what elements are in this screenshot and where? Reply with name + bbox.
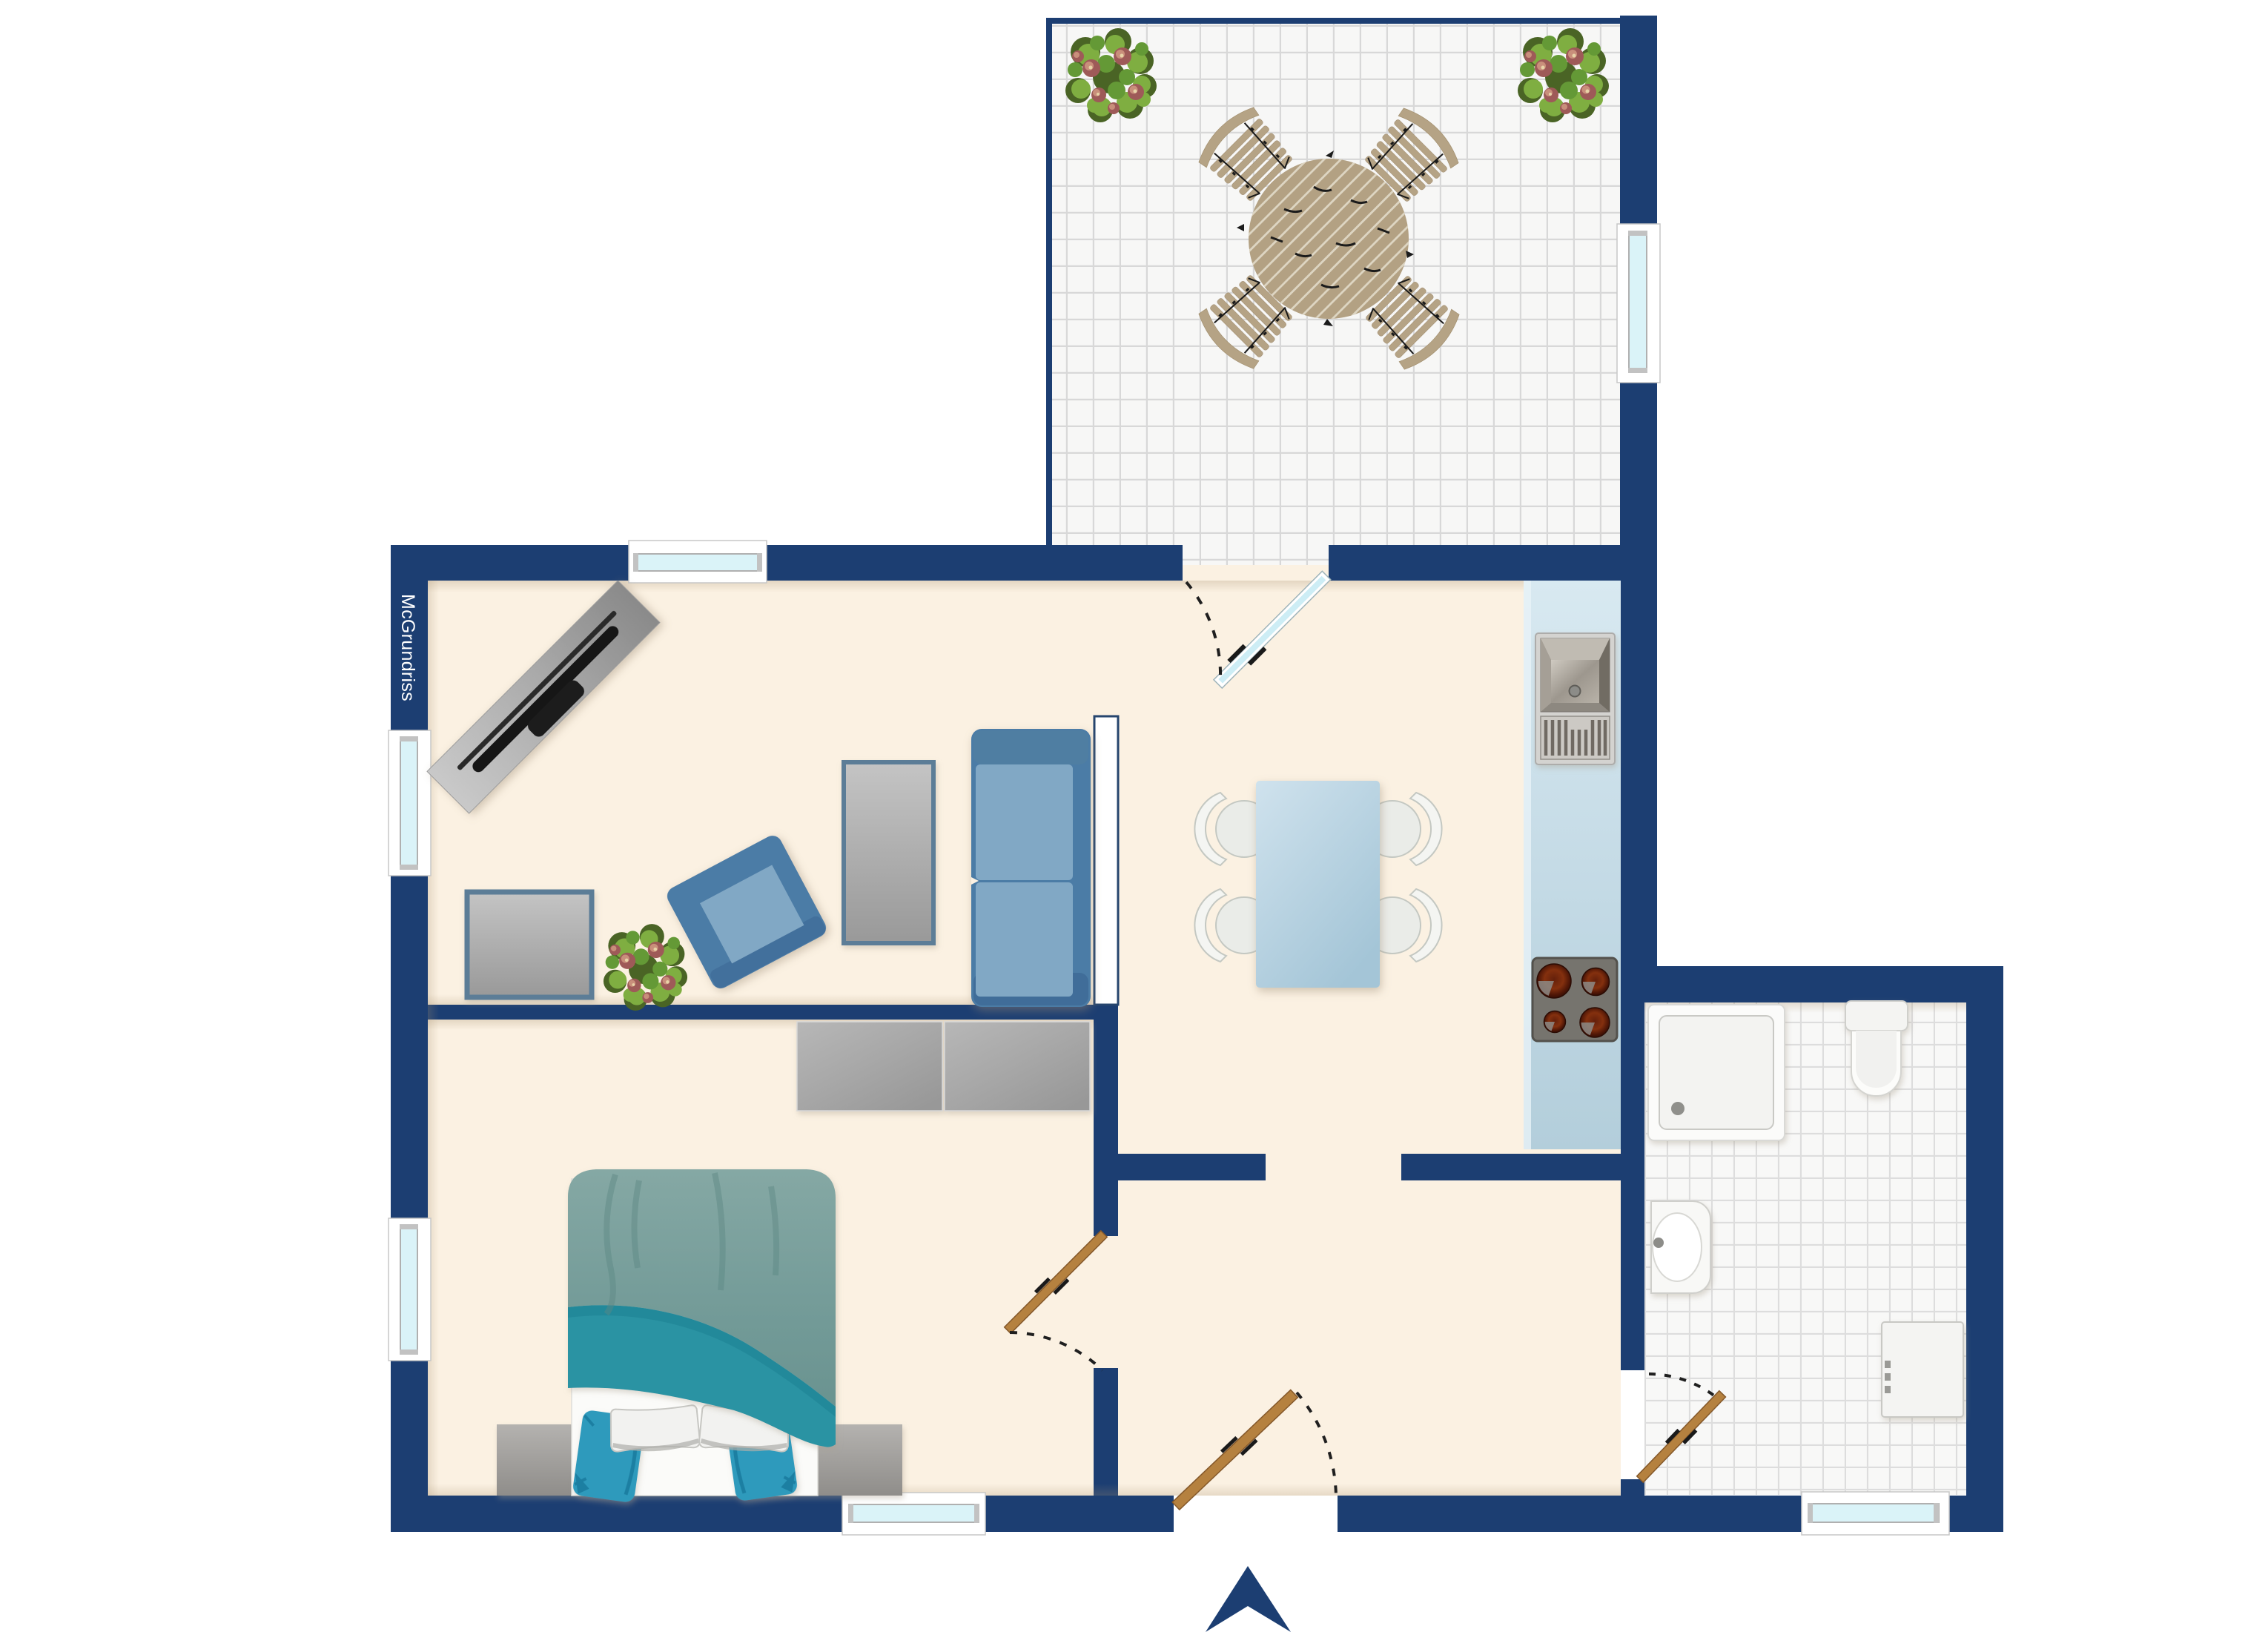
svg-text:McGrundriss: McGrundriss [397, 594, 418, 701]
